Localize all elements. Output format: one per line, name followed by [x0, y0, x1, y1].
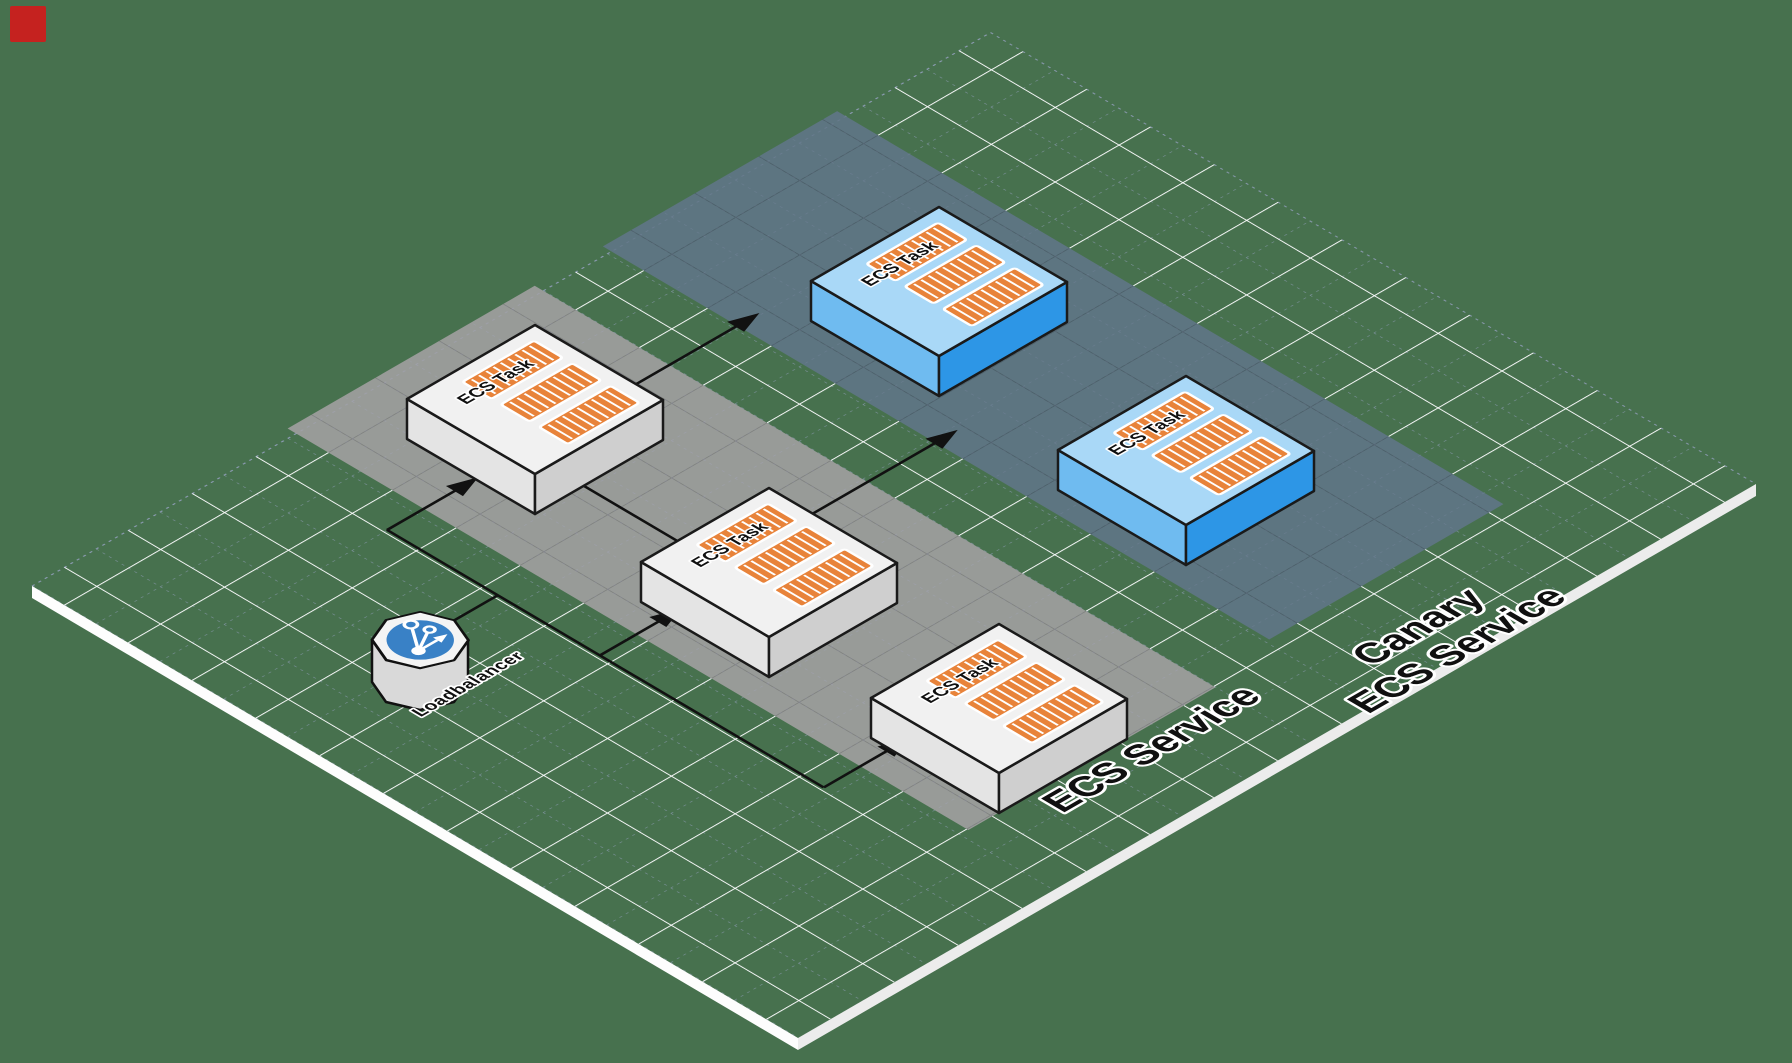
iso-platform [23, 27, 1756, 1037]
diagram-canvas: ECS Task ECS Task ECS Task [0, 0, 1792, 1063]
red-marker [10, 6, 46, 42]
